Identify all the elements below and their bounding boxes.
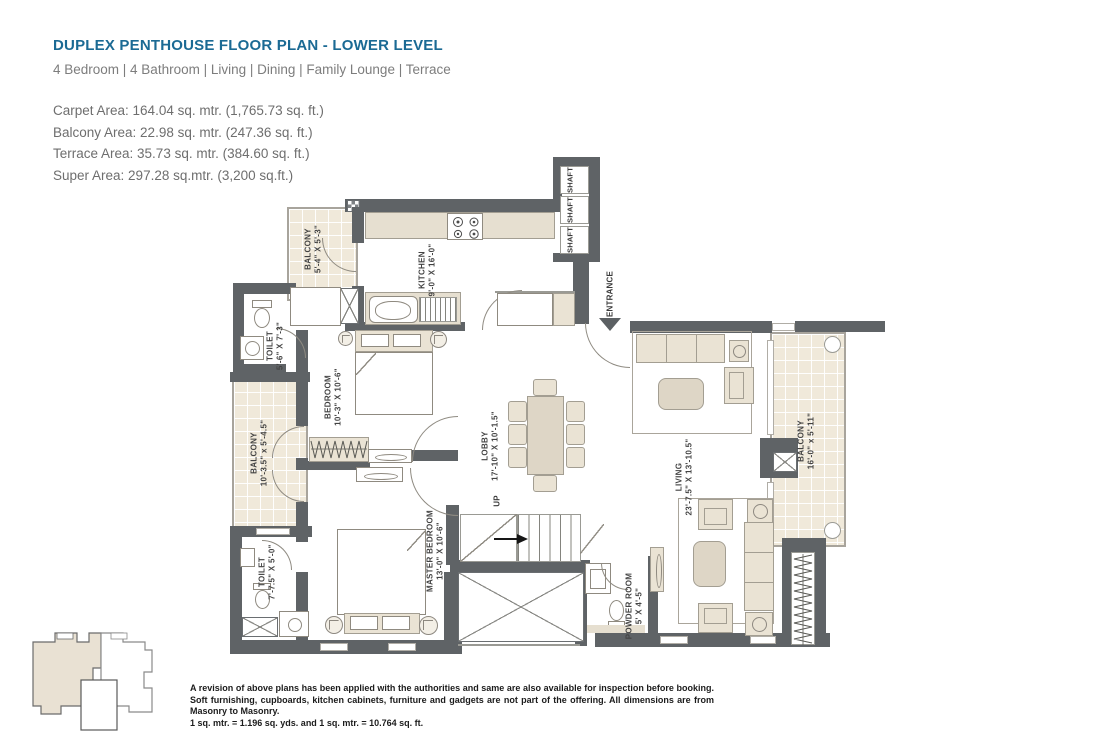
wall-entry-east bbox=[573, 258, 589, 324]
dining-table bbox=[527, 396, 564, 475]
label-powder-room: POWDER ROOM 5' X 4'-5" bbox=[625, 573, 644, 639]
void-bottom-line bbox=[458, 644, 580, 646]
vanity-counter bbox=[279, 611, 309, 637]
plant bbox=[752, 617, 767, 632]
label-toilet-bottom: TOILET 7'-7.5" X 5'-0" bbox=[258, 544, 277, 599]
foyer-cabinet bbox=[497, 293, 553, 326]
disclaimer-text: A revision of above plans has been appli… bbox=[190, 683, 714, 729]
room-name: LIVING bbox=[675, 439, 685, 516]
shaft-cell bbox=[560, 166, 589, 194]
label-toilet-top: TOILET 5'-6" X 7'-3" bbox=[266, 322, 285, 370]
room-dims: 5'-4" X 5'-3" bbox=[313, 225, 323, 273]
room-dims: 16'-0" x 5'-11" bbox=[806, 413, 816, 469]
shaft-label: SHAFT bbox=[566, 227, 575, 253]
room-name: TOILET bbox=[266, 322, 276, 370]
label-balcony-left: BALCONY 10'-3.5" x 5'-4.5" bbox=[250, 420, 269, 487]
dresser bbox=[356, 467, 403, 482]
dining-chair bbox=[533, 475, 557, 492]
kitchen-sink bbox=[369, 296, 418, 323]
stair-direction-line bbox=[494, 538, 518, 540]
sofa-cushion-divider bbox=[745, 552, 773, 553]
wall-toilet1-left bbox=[233, 283, 244, 375]
shaft-cell bbox=[560, 226, 589, 254]
shaft-label: SHAFT bbox=[566, 167, 575, 193]
console-handle bbox=[656, 554, 662, 588]
shower-tray bbox=[242, 617, 278, 637]
carpet-area-line: Carpet Area: 164.04 sq. mtr. (1,765.73 s… bbox=[53, 100, 324, 122]
balcony-duct bbox=[773, 452, 797, 472]
foyer-cabinet-end bbox=[553, 293, 575, 326]
toilet-wc-tank bbox=[252, 300, 272, 308]
kitchen-duct-column bbox=[340, 288, 359, 324]
master-door-arc bbox=[410, 468, 458, 516]
coffee-table bbox=[658, 378, 704, 410]
window bbox=[772, 323, 795, 331]
bedside-stool bbox=[419, 616, 438, 635]
key-plan-thumbnail bbox=[25, 620, 160, 740]
bedroom-door-arc bbox=[412, 416, 458, 462]
sink-drainboard bbox=[419, 297, 457, 322]
dining-chair bbox=[508, 447, 527, 468]
label-bedroom: BEDROOM 10'-3" X 10'-6" bbox=[324, 368, 343, 426]
wall-louver-right bbox=[815, 550, 826, 647]
armchair-seat bbox=[704, 508, 727, 525]
basin-bowl bbox=[245, 341, 260, 356]
balcony-corner-detail bbox=[824, 522, 841, 539]
planter bbox=[747, 499, 773, 523]
dining-chair bbox=[566, 424, 585, 445]
stairs-up-arrow-icon bbox=[517, 534, 528, 544]
planter bbox=[745, 612, 773, 636]
bed-sheet-fold bbox=[356, 353, 376, 375]
master-bed-pillow bbox=[382, 616, 410, 630]
room-dims: 10'-3" X 10'-6" bbox=[333, 368, 343, 426]
room-name: POWDER ROOM bbox=[625, 573, 635, 639]
room-dims: 9'-0" X 16'-0" bbox=[427, 244, 437, 297]
window bbox=[256, 528, 290, 535]
sofa-cushion-divider bbox=[666, 335, 667, 362]
armchair-seat bbox=[729, 372, 744, 399]
label-balcony-top: BALCONY 5'-4" X 5'-3" bbox=[304, 225, 323, 273]
room-name: BALCONY bbox=[250, 420, 260, 487]
wall-louver-left bbox=[782, 550, 791, 647]
window bbox=[320, 643, 348, 651]
area-summary: Carpet Area: 164.04 sq. mtr. (1,765.73 s… bbox=[53, 100, 324, 186]
wall-toilet2-right-stub bbox=[296, 526, 308, 542]
wall-terrace-top bbox=[795, 321, 885, 332]
sofa-3seat bbox=[636, 334, 725, 363]
coffee-table bbox=[693, 541, 726, 587]
room-dims: 5' X 4'-5" bbox=[634, 573, 644, 639]
bedside-stool bbox=[325, 616, 343, 634]
bed-pillow bbox=[393, 334, 421, 347]
disclaimer-conversion: 1 sq. mtr. = 1.196 sq. yds. and 1 sq. mt… bbox=[190, 718, 714, 730]
master-bed-pillow bbox=[350, 616, 378, 630]
planter bbox=[729, 340, 749, 362]
console-table bbox=[650, 547, 664, 592]
label-lobby: LOBBY 17'-10" X 10'-1.5" bbox=[481, 411, 500, 481]
room-name: KITCHEN bbox=[418, 244, 428, 297]
armchair-seat bbox=[704, 608, 727, 624]
floor-plan-page: DUPLEX PENTHOUSE FLOOR PLAN - LOWER LEVE… bbox=[0, 0, 1100, 750]
wall-shaft-right bbox=[589, 157, 600, 262]
room-dims: 13'-0" X 10'-6" bbox=[435, 510, 445, 592]
dresser-handle bbox=[375, 454, 407, 461]
window bbox=[767, 340, 774, 435]
shower-area bbox=[290, 287, 341, 326]
window bbox=[750, 636, 776, 644]
room-name: TOILET bbox=[258, 544, 268, 599]
wardrobe-hangers-icon bbox=[310, 438, 368, 461]
powder-wc-bowl bbox=[609, 600, 624, 621]
washbasin-small bbox=[240, 548, 255, 567]
armchair bbox=[724, 367, 754, 404]
stove-burners-icon bbox=[448, 214, 484, 241]
room-name: BALCONY bbox=[797, 413, 807, 469]
balcony-corner-detail bbox=[824, 336, 841, 353]
room-dims: 23'-7.5" X 13'-10.5" bbox=[684, 439, 694, 516]
balcony-area-line: Balcony Area: 22.98 sq. mtr. (247.36 sq.… bbox=[53, 122, 324, 144]
room-name: BEDROOM bbox=[324, 368, 334, 426]
window bbox=[660, 636, 688, 644]
plant bbox=[753, 504, 768, 519]
double-height-void bbox=[458, 572, 584, 642]
entrance-label: ENTRANCE bbox=[606, 271, 615, 317]
label-living: LIVING 23'-7.5" X 13'-10.5" bbox=[675, 439, 694, 516]
dresser bbox=[368, 449, 412, 463]
shaft-cell bbox=[560, 196, 589, 224]
room-name: MASTER BEDROOM bbox=[426, 510, 436, 592]
room-name: LOBBY bbox=[481, 411, 491, 481]
louver-zigzag-icon bbox=[792, 553, 814, 646]
dresser-handle bbox=[364, 473, 398, 480]
vanity-basin bbox=[288, 618, 302, 632]
dining-chair bbox=[508, 424, 527, 445]
louver-strip bbox=[791, 552, 815, 645]
up-label: UP bbox=[493, 495, 502, 507]
plant bbox=[733, 345, 746, 358]
label-balcony-right: BALCONY 16'-0" x 5'-11" bbox=[797, 413, 816, 469]
label-kitchen: KITCHEN 9'-0" X 16'-0" bbox=[418, 244, 437, 297]
sofa-3seat-vertical bbox=[744, 522, 774, 611]
wall-balcony2-door-mid bbox=[296, 458, 308, 470]
wall-kitchen-top bbox=[345, 199, 561, 212]
room-dims: 10'-3.5" x 5'-4.5" bbox=[259, 420, 269, 487]
dining-chair bbox=[566, 447, 585, 468]
room-name: BALCONY bbox=[304, 225, 314, 273]
shaft-label: SHAFT bbox=[566, 197, 575, 223]
dining-chair bbox=[533, 379, 557, 396]
master-bed-fold bbox=[407, 530, 426, 551]
armchair bbox=[698, 603, 733, 633]
stove bbox=[447, 213, 483, 240]
bedside-stool bbox=[430, 331, 447, 348]
wardrobe bbox=[309, 437, 369, 462]
page-title: DUPLEX PENTHOUSE FLOOR PLAN - LOWER LEVE… bbox=[53, 37, 443, 54]
dining-chair bbox=[508, 401, 527, 422]
bedside-stool bbox=[338, 331, 353, 346]
terrace-area-line: Terrace Area: 35.73 sq. mtr. (384.60 sq.… bbox=[53, 143, 324, 165]
entrance-door-arc bbox=[585, 323, 630, 368]
super-area-line: Super Area: 297.28 sq.mtr. (3,200 sq.ft.… bbox=[53, 165, 324, 187]
wall-balcony2-door-b bbox=[296, 502, 308, 528]
label-master-bedroom: MASTER BEDROOM 13'-0" X 10'-6" bbox=[426, 510, 445, 592]
room-dims: 17'-10" X 10'-1.5" bbox=[490, 411, 500, 481]
armchair bbox=[698, 499, 733, 530]
sofa-cushion-divider bbox=[745, 582, 773, 583]
wall-void-left bbox=[444, 572, 458, 652]
sink-basin bbox=[375, 301, 411, 320]
room-dims: 7'-7.5" X 5'-0" bbox=[267, 544, 277, 599]
disclaimer-paragraph: A revision of above plans has been appli… bbox=[190, 683, 714, 718]
key-plan-icon bbox=[25, 620, 160, 735]
sofa-cushion-divider bbox=[696, 335, 697, 362]
window bbox=[388, 643, 416, 651]
dining-chair bbox=[566, 401, 585, 422]
stair-break-line bbox=[580, 524, 604, 554]
wall-balcony2-door-a bbox=[296, 374, 308, 426]
room-dims: 5'-6" X 7'-3" bbox=[275, 322, 285, 370]
wall-toilet2-left bbox=[230, 526, 242, 654]
plan-subtitle: 4 Bedroom | 4 Bathroom | Living | Dining… bbox=[53, 62, 451, 77]
washbasin bbox=[240, 336, 264, 360]
bed-pillow bbox=[361, 334, 389, 347]
